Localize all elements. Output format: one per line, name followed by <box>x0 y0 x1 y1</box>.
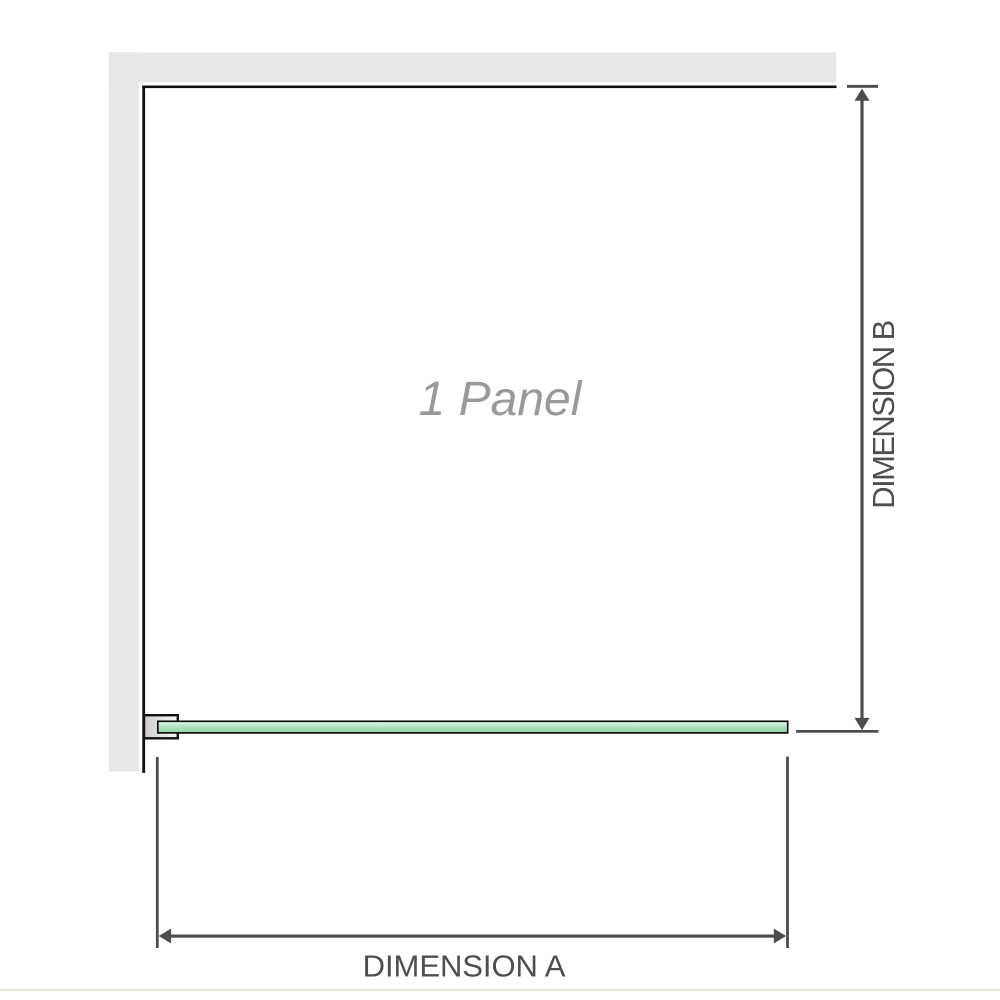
svg-text:DIMENSION B: DIMENSION B <box>866 320 901 508</box>
svg-text:DIMENSION A: DIMENSION A <box>363 948 566 983</box>
svg-text:1 Panel: 1 Panel <box>419 373 583 426</box>
